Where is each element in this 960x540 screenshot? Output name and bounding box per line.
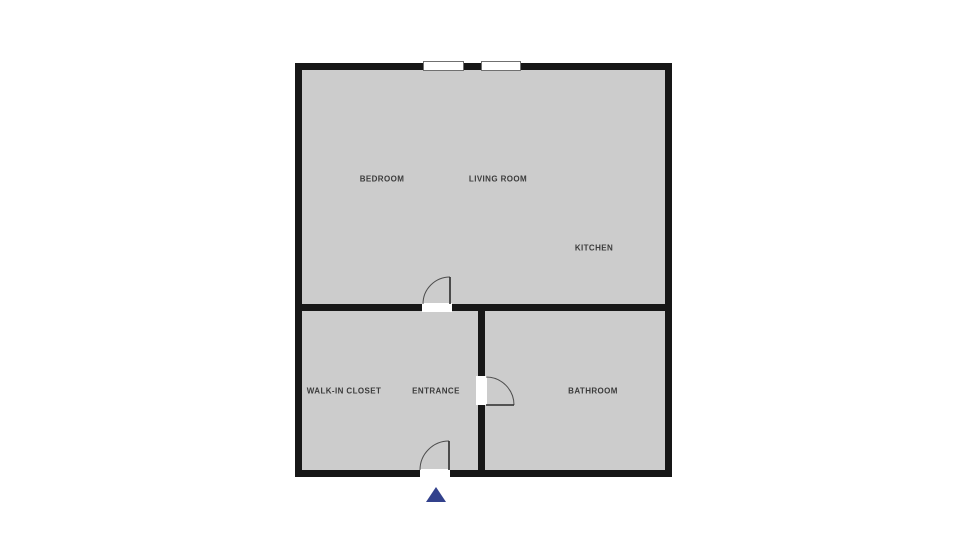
bathroom-door-threshold <box>476 376 487 405</box>
interior-wall-horizontal-right <box>452 304 672 311</box>
interior-wall-vertical-bottom <box>478 405 485 477</box>
inner-door-threshold <box>422 303 452 312</box>
room-label-living-room: LIVING ROOM <box>469 175 527 184</box>
window-icon <box>481 61 521 71</box>
entrance-arrow-icon <box>426 487 446 502</box>
entrance-door-threshold <box>420 469 450 480</box>
window-icon <box>423 61 464 71</box>
room-label-kitchen: KITCHEN <box>575 244 613 253</box>
interior-wall-horizontal-left <box>295 304 422 311</box>
room-label-bathroom: BATHROOM <box>568 387 618 396</box>
interior-wall-vertical-top <box>478 311 485 376</box>
floor-plan-canvas: BEDROOM LIVING ROOM KITCHEN WALK-IN CLOS… <box>0 0 960 540</box>
room-label-walk-in-closet: WALK-IN CLOSET <box>307 387 381 396</box>
room-label-entrance: ENTRANCE <box>412 387 460 396</box>
room-label-bedroom: BEDROOM <box>360 175 405 184</box>
